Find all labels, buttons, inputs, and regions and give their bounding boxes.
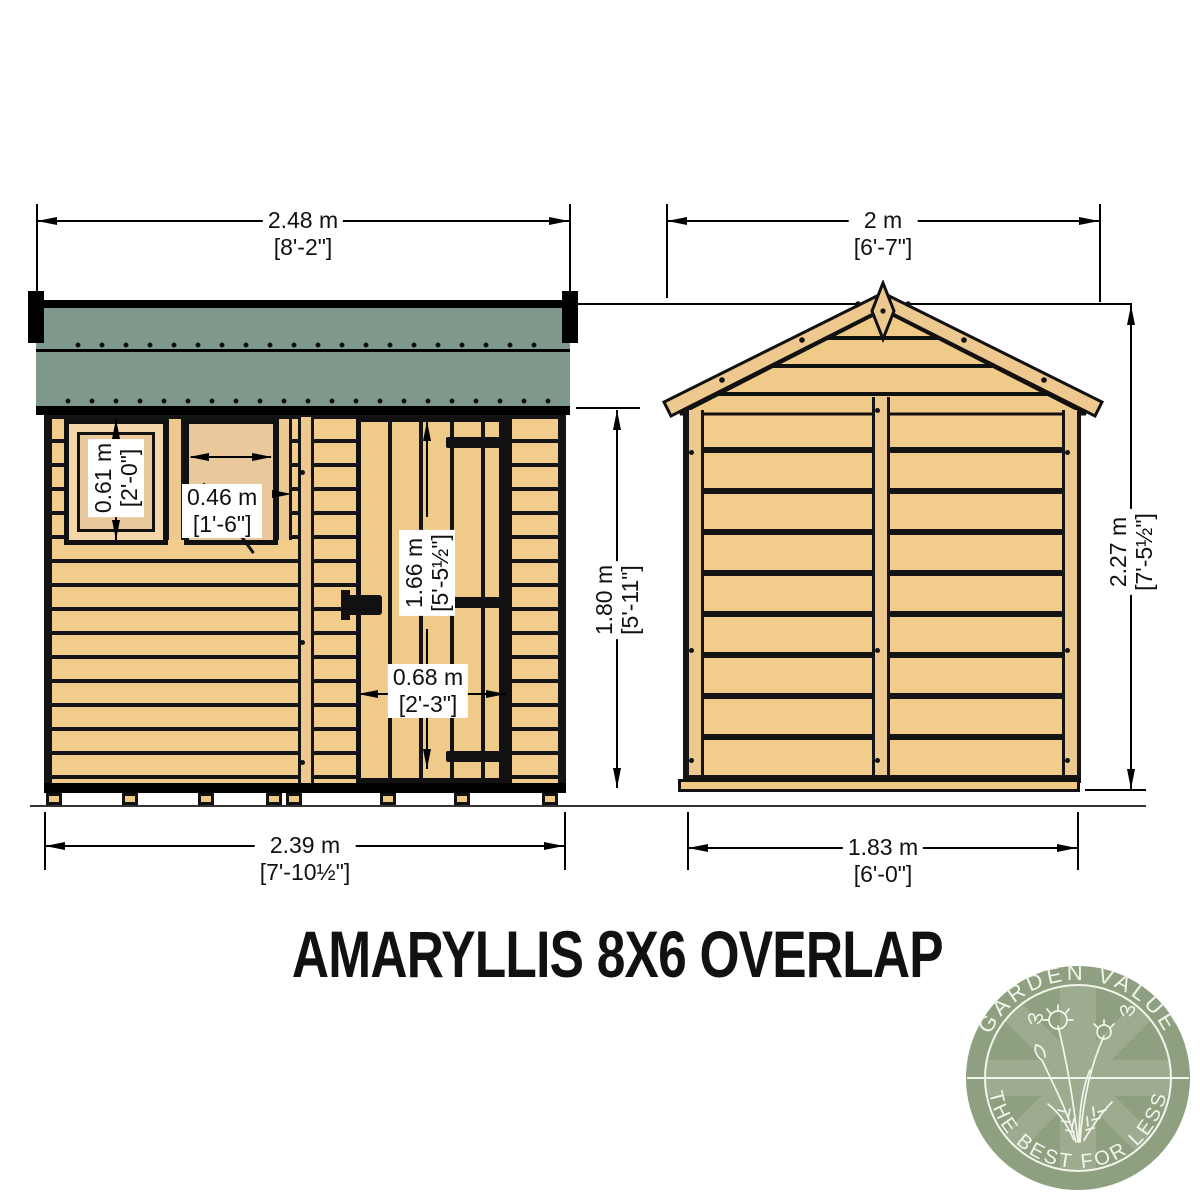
side-floor-bearer — [678, 779, 1080, 792]
bearer-foot — [122, 793, 138, 805]
dim-window-height-label: 0.61 m [2'-0"] — [88, 439, 144, 517]
roof-nail-row-mid — [60, 341, 546, 349]
door-hinge-middle — [446, 597, 506, 608]
dim-imperial: [8'-2"] — [268, 234, 338, 261]
side-corner-trim-right — [1062, 410, 1080, 775]
roof-nail-row-eave — [50, 397, 556, 405]
ground-line — [30, 805, 1146, 807]
eaves-extension-line — [576, 407, 640, 409]
dim-door-width-label: 0.68 m [2'-3"] — [388, 664, 468, 718]
front-floor-band — [44, 783, 566, 793]
bearer-foot — [286, 793, 302, 805]
roof-end-cap-right — [562, 291, 578, 343]
shed-dimension-diagram: 2.48 m [8'-2"] 0.61 m [2'-0"] 0.46 m [ — [0, 0, 1200, 1200]
bearer-foot — [380, 793, 396, 805]
side-centre-trim — [872, 397, 890, 775]
garden-value-logo: GARDEN VALUE THE BEST FOR LESS — [962, 962, 1194, 1194]
base-extension-line-right-shed — [1085, 789, 1146, 791]
bearer-foot — [198, 793, 214, 805]
product-title: AMARYLLIS 8X6 OVERLAP — [200, 916, 1000, 992]
door-hinge-top — [446, 437, 506, 448]
roof-end-cap-left — [28, 291, 44, 343]
dim-metric: 2.48 m — [268, 207, 338, 234]
bearer-foot — [542, 793, 558, 805]
bearer-foot — [454, 793, 470, 805]
bearer-foot — [266, 793, 282, 805]
door-hinge-bottom — [446, 751, 506, 762]
corner-trim-front-mid — [276, 419, 292, 540]
side-corner-trim-left — [686, 410, 704, 775]
dim-window-width-label: 0.46 m [1'-6"] — [182, 484, 262, 538]
bearer-foot — [46, 793, 62, 805]
door-latch-plate — [341, 590, 350, 620]
dim-door-height-label: 1.66 m [5'-5½"] — [399, 530, 455, 616]
door-latch — [346, 595, 382, 615]
